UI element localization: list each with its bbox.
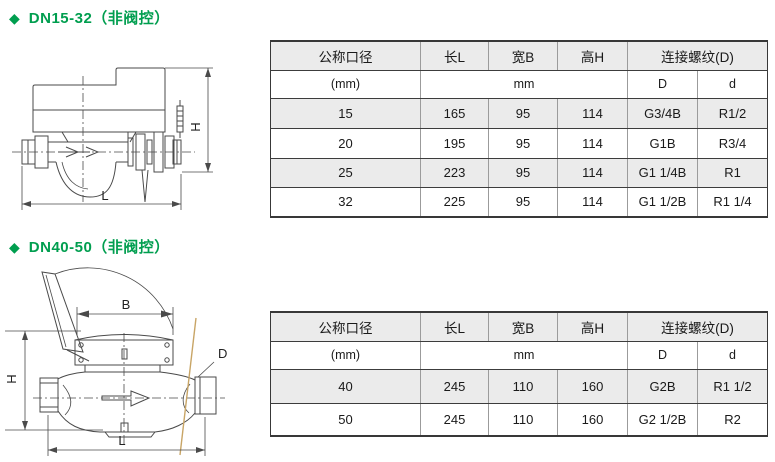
- table-row: 40 245 110 160 G2B R1 1/2: [271, 369, 768, 403]
- probe-line: [180, 318, 196, 455]
- section-title-dn15-32: ◆ DN15-32（非阀控）: [9, 7, 170, 28]
- table-cell: G3/4B: [628, 98, 698, 128]
- table-cell: G2 1/2B: [628, 403, 698, 436]
- table-cell: 160: [558, 369, 628, 403]
- table-cell: 20: [271, 128, 421, 158]
- table-row: 25 223 95 114 G1 1/4B R1: [271, 158, 768, 187]
- header-nominal-diameter: 公称口径: [271, 41, 421, 70]
- unit-mm-span: mm: [421, 70, 628, 98]
- table-unit-row: (mm) mm D d: [271, 341, 768, 369]
- unit-mm-span: mm: [421, 341, 628, 369]
- unit-thread-D: D: [628, 341, 698, 369]
- table-row: 50 245 110 160 G2 1/2B R2: [271, 403, 768, 436]
- header-width: 宽B: [489, 41, 558, 70]
- dim-label-L: L: [118, 433, 125, 448]
- unit-thread-d: d: [698, 70, 768, 98]
- unit-thread-D: D: [628, 70, 698, 98]
- diamond-bullet-icon: ◆: [9, 11, 20, 25]
- table-cell: 195: [421, 128, 489, 158]
- table-cell: 114: [558, 187, 628, 217]
- table-cell: 32: [271, 187, 421, 217]
- flow-arrow: [102, 391, 149, 406]
- section-title-text: DN15-32（非阀控）: [29, 7, 170, 28]
- table-cell: 114: [558, 98, 628, 128]
- table-cell: R1 1/4: [698, 187, 768, 217]
- table-row: 32 225 95 114 G1 1/2B R1 1/4: [271, 187, 768, 217]
- table-cell: R3/4: [698, 128, 768, 158]
- table-cell: 223: [421, 158, 489, 187]
- header-height: 高H: [558, 41, 628, 70]
- header-length: 长L: [421, 41, 489, 70]
- header-width: 宽B: [489, 312, 558, 341]
- dn15-32-technical-drawing: H L: [10, 50, 260, 225]
- meter-body-dn40: [33, 268, 225, 455]
- dim-label-H: H: [5, 374, 19, 383]
- table-cell: R1/2: [698, 98, 768, 128]
- table-cell: 95: [489, 128, 558, 158]
- dim-label-B: B: [122, 297, 131, 312]
- table-cell: 25: [271, 158, 421, 187]
- table-cell: G2B: [628, 369, 698, 403]
- table-header-row: 公称口径 长L 宽B 高H 连接螺纹(D): [271, 312, 768, 341]
- table-cell: 95: [489, 187, 558, 217]
- table-cell: 245: [421, 369, 489, 403]
- table-cell: 245: [421, 403, 489, 436]
- table-cell: R1: [698, 158, 768, 187]
- header-thread: 连接螺纹(D): [628, 41, 768, 70]
- table-cell: 165: [421, 98, 489, 128]
- dn40-50-spec-table: 公称口径 长L 宽B 高H 连接螺纹(D) (mm) mm D d 40 245…: [270, 311, 768, 437]
- table-cell: 110: [489, 369, 558, 403]
- dimension-L: L: [48, 415, 205, 456]
- dimension-H: H: [5, 331, 103, 430]
- dn40-50-technical-drawing: B H L D: [5, 265, 260, 462]
- dim-label-D: D: [218, 346, 227, 361]
- unit-nominal-mm: (mm): [271, 341, 421, 369]
- table-cell: G1 1/4B: [628, 158, 698, 187]
- table-cell: 95: [489, 98, 558, 128]
- table-cell: R2: [698, 403, 768, 436]
- unit-nominal-mm: (mm): [271, 70, 421, 98]
- dimension-H: H: [165, 68, 213, 172]
- unit-thread-d: d: [698, 341, 768, 369]
- table-cell: 160: [558, 403, 628, 436]
- section-title-dn40-50: ◆ DN40-50（非阀控）: [9, 236, 170, 257]
- section-title-text: DN40-50（非阀控）: [29, 236, 170, 257]
- table-cell: 114: [558, 128, 628, 158]
- cable-gland-detail: [177, 100, 183, 138]
- table-cell: 50: [271, 403, 421, 436]
- table-cell: 225: [421, 187, 489, 217]
- dim-label-L: L: [101, 188, 108, 203]
- table-cell: 95: [489, 158, 558, 187]
- lid-swing-arc: [55, 268, 173, 329]
- table-cell: G1B: [628, 128, 698, 158]
- header-height: 高H: [558, 312, 628, 341]
- table-unit-row: (mm) mm D d: [271, 70, 768, 98]
- table-cell: G1 1/2B: [628, 187, 698, 217]
- header-length: 长L: [421, 312, 489, 341]
- table-cell: 114: [558, 158, 628, 187]
- table-row: 15 165 95 114 G3/4B R1/2: [271, 98, 768, 128]
- table-cell: 15: [271, 98, 421, 128]
- dimension-L: L: [22, 166, 181, 210]
- dn15-32-spec-table: 公称口径 长L 宽B 高H 连接螺纹(D) (mm) mm D d 15 165…: [270, 40, 768, 218]
- table-cell: 110: [489, 403, 558, 436]
- diamond-bullet-icon: ◆: [9, 240, 20, 254]
- probe-detail: [142, 170, 148, 202]
- table-row: 20 195 95 114 G1B R3/4: [271, 128, 768, 158]
- table-header-row: 公称口径 长L 宽B 高H 连接螺纹(D): [271, 41, 768, 70]
- dim-label-H: H: [188, 122, 203, 131]
- table-cell: R1 1/2: [698, 369, 768, 403]
- header-thread: 连接螺纹(D): [628, 312, 768, 341]
- water-meter-spec-page: ◆ DN15-32（非阀控）: [0, 0, 775, 462]
- table-cell: 40: [271, 369, 421, 403]
- meter-body-dn15: [12, 68, 195, 202]
- dimension-D-callout: D: [198, 346, 227, 377]
- header-nominal-diameter: 公称口径: [271, 312, 421, 341]
